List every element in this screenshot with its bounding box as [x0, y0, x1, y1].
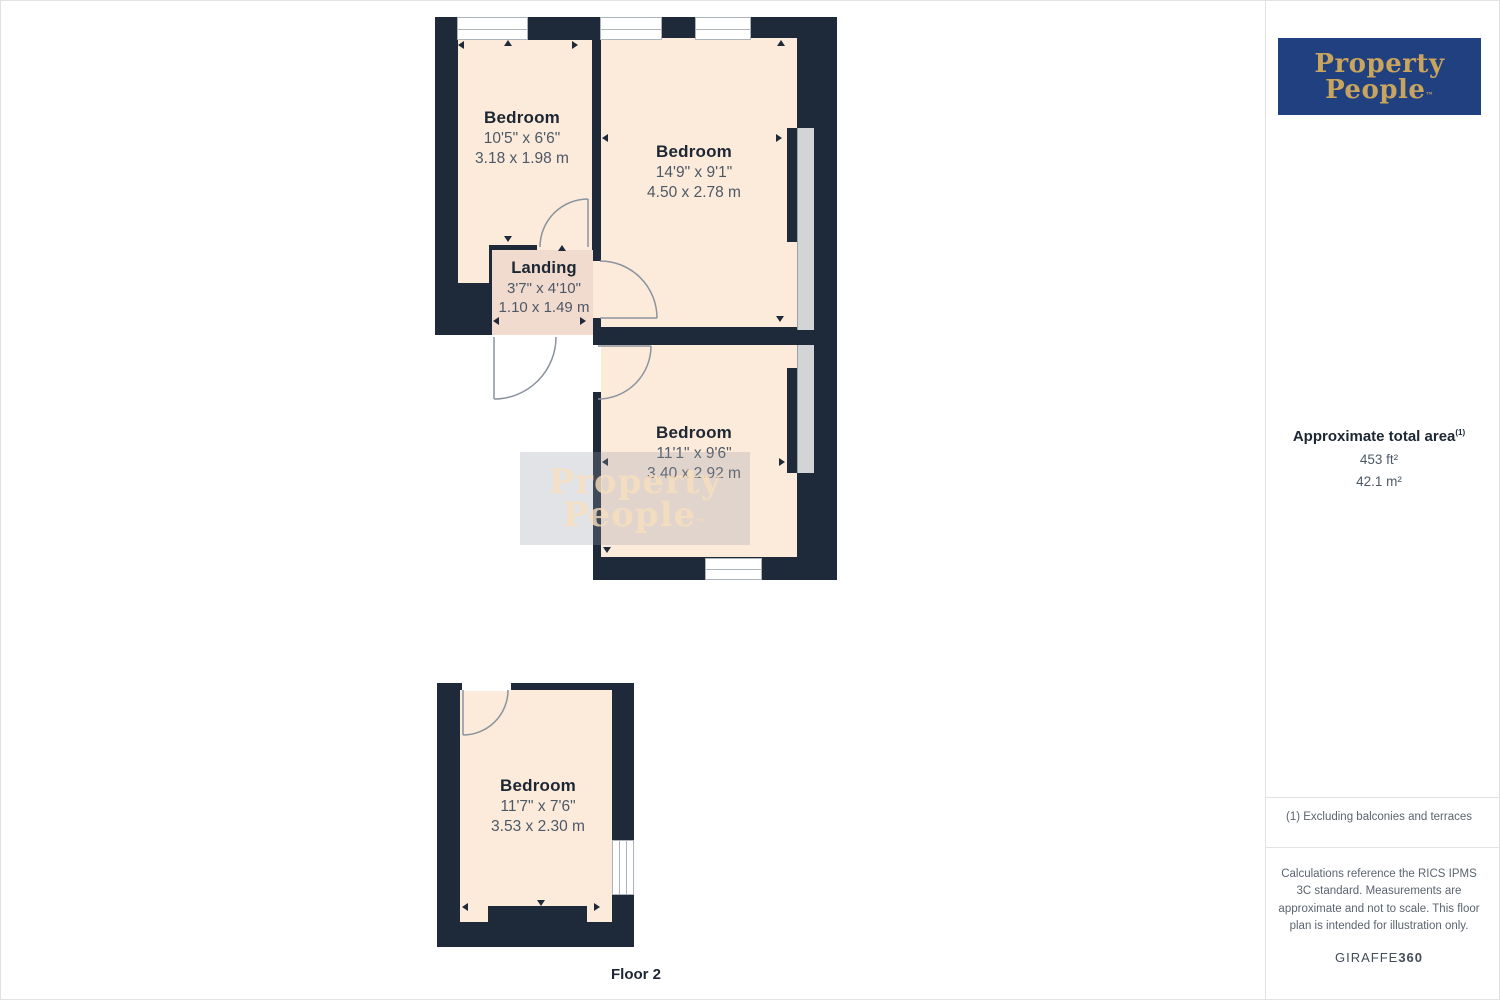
door-opening-bedroom-middle: [593, 345, 601, 392]
dimension-arrow: [777, 40, 785, 46]
dimension-arrow: [558, 245, 566, 251]
room-name: Bedroom: [475, 108, 569, 128]
door-opening-landing-bedroom2: [593, 261, 601, 318]
window-bedroom-floor2: [612, 840, 634, 895]
total-area-block: Approximate total area(1) 453 ft² 42.1 m…: [1266, 428, 1492, 489]
wall-jamb-lower: [787, 368, 797, 473]
room-dims-metric: 3.53 x 2.30 m: [491, 818, 585, 836]
dimension-arrow: [776, 316, 784, 322]
window-bay-lower: [797, 345, 814, 473]
room-dims-imperial: 3'7" x 4'10": [499, 280, 590, 297]
dimension-arrow: [537, 900, 545, 906]
dimension-arrow: [602, 458, 608, 466]
dimension-arrow: [462, 903, 468, 911]
room-name: Bedroom: [647, 423, 741, 443]
room-fill-bedroom-top-left-ext: [458, 245, 489, 283]
room-name: Bedroom: [647, 142, 741, 162]
dimension-arrow: [504, 236, 512, 242]
giraffe-360: 360: [1398, 950, 1423, 965]
room-dims-metric: 1.10 x 1.49 m: [499, 299, 590, 316]
sidebar-divider-vertical: [1265, 0, 1266, 1000]
room-label-landing: Landing 3'7" x 4'10" 1.10 x 1.49 m: [499, 259, 590, 316]
sidebar-divider-1: [1266, 797, 1500, 798]
door-arc-stairs: [494, 337, 556, 399]
room-label-bedroom-top-right: Bedroom 14'9" x 9'1" 4.50 x 2.78 m: [647, 142, 741, 202]
dimension-arrow: [603, 547, 611, 553]
dimension-arrow: [603, 336, 611, 342]
room-dims-imperial: 14'9" x 9'1": [647, 164, 741, 182]
room-label-bedroom-top-left: Bedroom 10'5" x 6'6" 3.18 x 1.98 m: [475, 108, 569, 168]
chimney-breast: [488, 906, 587, 922]
logo-line1: Property: [1314, 51, 1444, 77]
window-bay-upper: [797, 128, 814, 330]
window-bedroom-top-right-2: [695, 17, 751, 40]
disclaimer-text: Calculations reference the RICS IPMS 3C …: [1276, 866, 1482, 935]
floorplan-page: Bedroom 10'5" x 6'6" 3.18 x 1.98 m Bedro…: [0, 0, 1500, 1000]
footnote-exclusions: (1) Excluding balconies and terraces: [1266, 811, 1492, 823]
dimension-arrow: [458, 41, 464, 49]
floor-label: Floor 2: [611, 966, 661, 983]
dimension-arrow: [580, 317, 586, 325]
room-label-bedroom-floor2: Bedroom 11'7" x 7'6" 3.53 x 2.30 m: [491, 776, 585, 836]
window-bedroom-top-left: [457, 17, 528, 40]
footnote-marker: (1): [1455, 428, 1465, 437]
room-label-bedroom-middle: Bedroom 11'1" x 9'6" 3.40 x 2.92 m: [647, 423, 741, 483]
wall-jamb-upper: [787, 128, 797, 242]
door-opening-floor2: [462, 681, 511, 691]
dimension-arrow: [504, 40, 512, 46]
giraffe-label: GIRAFFE: [1335, 950, 1398, 965]
room-dims-imperial: 11'1" x 9'6": [647, 445, 741, 463]
sidebar-divider-2: [1266, 847, 1500, 848]
room-dims-metric: 3.18 x 1.98 m: [475, 150, 569, 168]
room-name: Bedroom: [491, 776, 585, 796]
dimension-arrow: [493, 317, 499, 325]
property-people-logo: Property People™: [1278, 38, 1481, 115]
dimension-arrow: [776, 134, 782, 142]
dimension-arrow: [572, 41, 578, 49]
logo-line2: People™: [1325, 77, 1434, 103]
dimension-arrow: [779, 458, 785, 466]
dimension-arrow: [602, 134, 608, 142]
dimension-arrow: [594, 903, 600, 911]
window-bedroom-top-right-1: [600, 17, 662, 40]
area-value-m: 42.1 m²: [1266, 474, 1492, 489]
room-dims-metric: 3.40 x 2.92 m: [647, 465, 741, 483]
room-dims-metric: 4.50 x 2.78 m: [647, 184, 741, 202]
giraffe360-brand: GIRAFFE360: [1266, 950, 1492, 965]
room-name: Landing: [499, 259, 590, 278]
trademark-symbol: ™: [1425, 90, 1434, 100]
room-dims-imperial: 10'5" x 6'6": [475, 130, 569, 148]
window-bedroom-middle-bottom: [705, 558, 762, 580]
area-title: Approximate total area(1): [1266, 428, 1492, 445]
room-dims-imperial: 11'7" x 7'6": [491, 798, 585, 816]
area-value-ft: 453 ft²: [1266, 452, 1492, 467]
